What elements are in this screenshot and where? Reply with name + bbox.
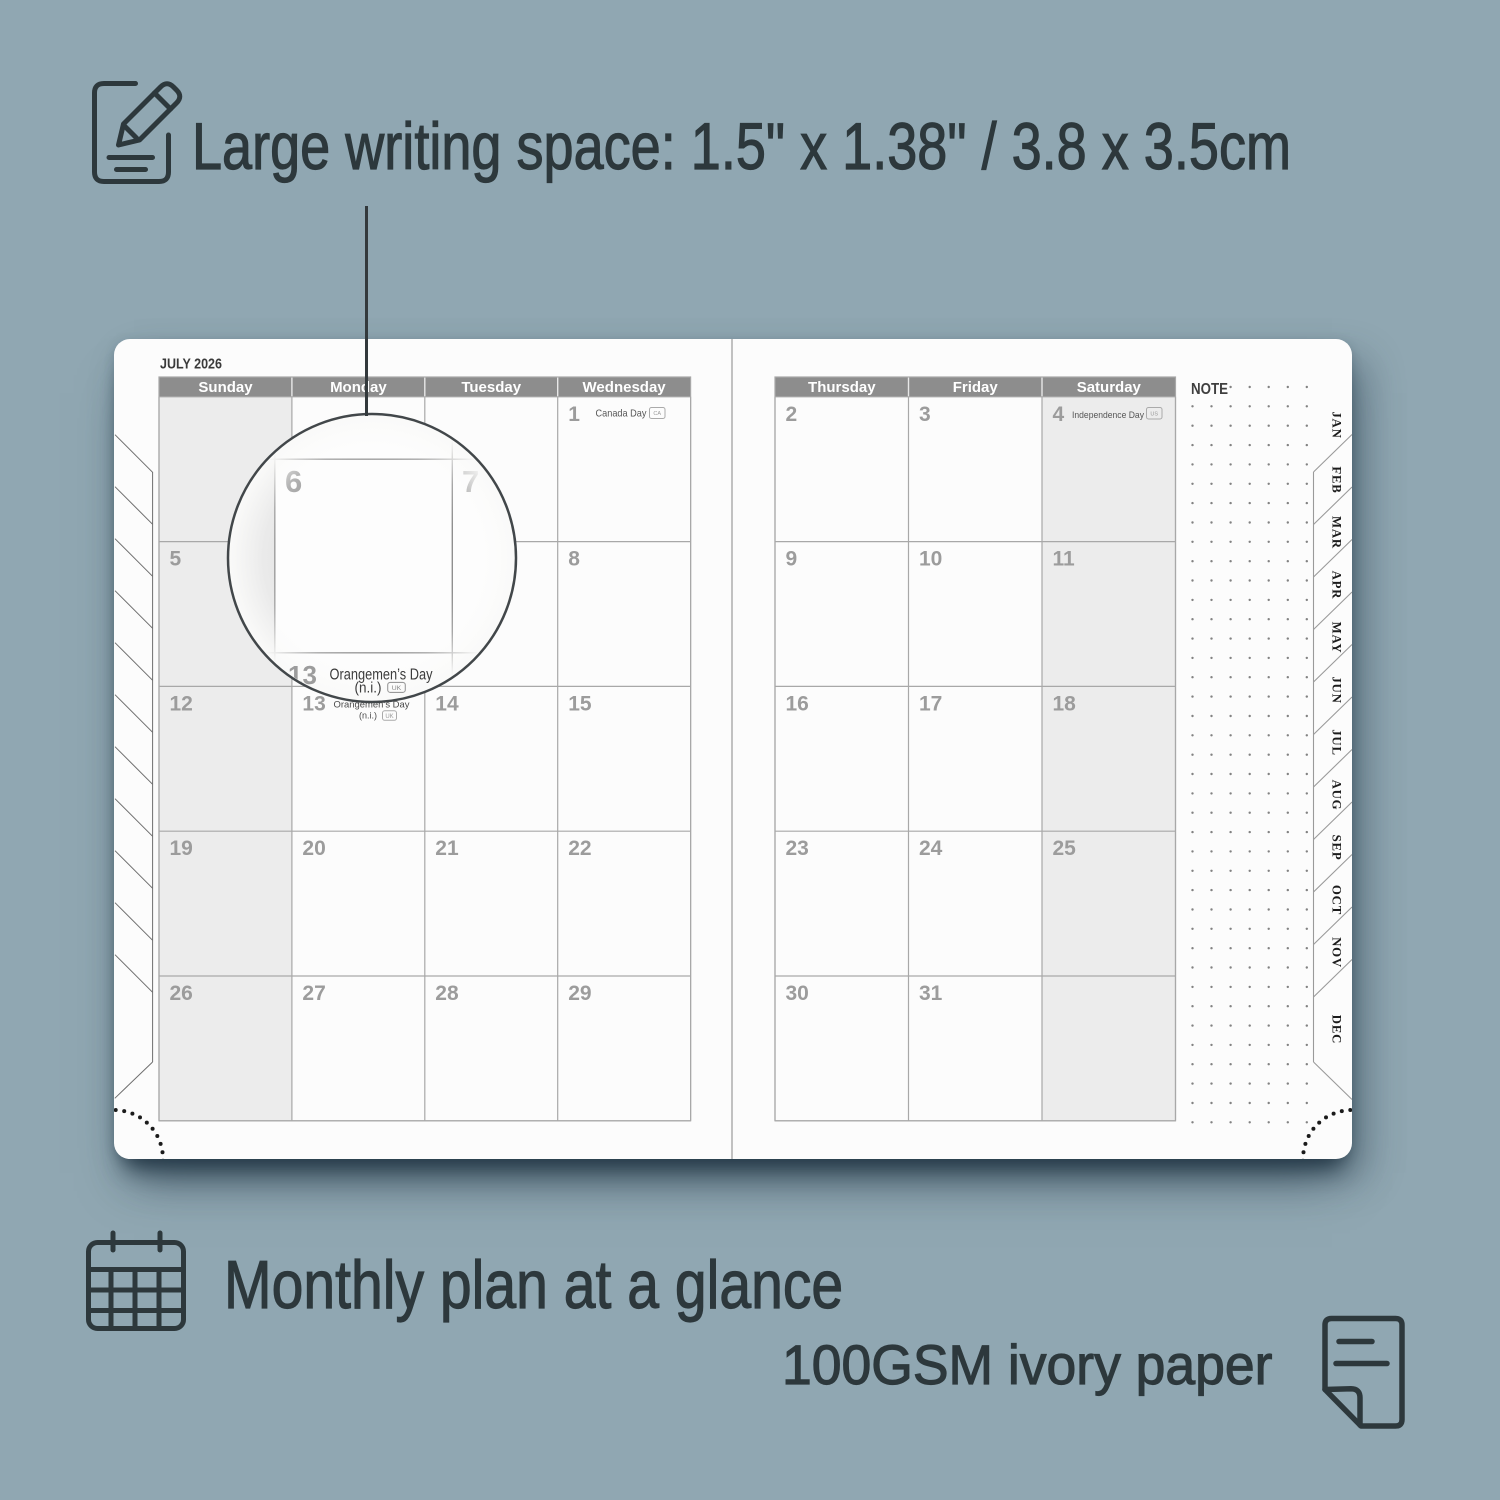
svg-text:JULY 2026: JULY 2026	[160, 357, 222, 373]
svg-text:MAR: MAR	[1330, 516, 1344, 549]
svg-text:8: 8	[568, 548, 580, 571]
svg-text:DEC: DEC	[1330, 1015, 1344, 1044]
svg-text:MAY: MAY	[1330, 622, 1344, 654]
svg-text:JUL: JUL	[1330, 729, 1344, 756]
svg-text:APR: APR	[1330, 571, 1344, 600]
svg-text:26: 26	[170, 982, 193, 1005]
svg-text:UK: UK	[385, 714, 393, 720]
svg-text:23: 23	[786, 837, 809, 860]
svg-text:2: 2	[786, 403, 798, 426]
svg-text:JUN: JUN	[1330, 676, 1344, 703]
svg-text:Saturday: Saturday	[1077, 379, 1142, 396]
svg-text:NOV: NOV	[1330, 937, 1344, 968]
svg-text:9: 9	[786, 548, 798, 571]
svg-text:Monday: Monday	[330, 379, 387, 396]
svg-text:US: US	[1150, 412, 1158, 418]
svg-text:31: 31	[919, 982, 943, 1005]
svg-text:18: 18	[1053, 692, 1077, 715]
svg-text:4: 4	[1053, 403, 1065, 426]
svg-text:Canada Day: Canada Day	[596, 408, 648, 420]
svg-text:NOTE: NOTE	[1191, 381, 1228, 398]
svg-text:FEB: FEB	[1330, 466, 1344, 493]
svg-text:13: 13	[302, 692, 325, 715]
svg-text:21: 21	[435, 837, 459, 860]
svg-text:OCT: OCT	[1330, 885, 1344, 915]
svg-text:Sunday: Sunday	[198, 379, 253, 396]
svg-text:28: 28	[435, 982, 459, 1005]
svg-text:Wednesday: Wednesday	[583, 379, 667, 396]
svg-text:SEP: SEP	[1330, 835, 1344, 861]
svg-text:29: 29	[568, 982, 591, 1005]
svg-text:12: 12	[170, 692, 193, 715]
svg-text:3: 3	[919, 403, 931, 426]
svg-text:15: 15	[568, 692, 592, 715]
svg-text:14: 14	[435, 692, 459, 715]
svg-text:(n.i.): (n.i.)	[359, 711, 377, 721]
svg-text:11: 11	[1053, 548, 1076, 571]
svg-text:CA: CA	[653, 411, 661, 417]
svg-text:Tuesday: Tuesday	[461, 379, 521, 396]
svg-text:30: 30	[786, 982, 809, 1005]
svg-text:1: 1	[568, 403, 580, 426]
svg-text:20: 20	[302, 837, 325, 860]
svg-text:Thursday: Thursday	[808, 379, 876, 396]
svg-text:(n.i.): (n.i.)	[355, 681, 382, 697]
svg-text:16: 16	[786, 692, 809, 715]
svg-text:10: 10	[919, 548, 942, 571]
svg-text:AUG: AUG	[1330, 780, 1344, 811]
svg-text:27: 27	[302, 982, 325, 1005]
svg-text:17: 17	[919, 692, 942, 715]
svg-text:19: 19	[170, 837, 193, 860]
svg-text:25: 25	[1053, 837, 1077, 860]
svg-text:22: 22	[568, 837, 591, 860]
svg-text:24: 24	[919, 837, 943, 860]
svg-text:Independence Day: Independence Day	[1072, 410, 1144, 421]
svg-text:5: 5	[170, 548, 182, 571]
svg-text:JAN: JAN	[1330, 411, 1344, 438]
svg-text:Friday: Friday	[953, 379, 999, 396]
svg-text:UK: UK	[392, 685, 402, 692]
